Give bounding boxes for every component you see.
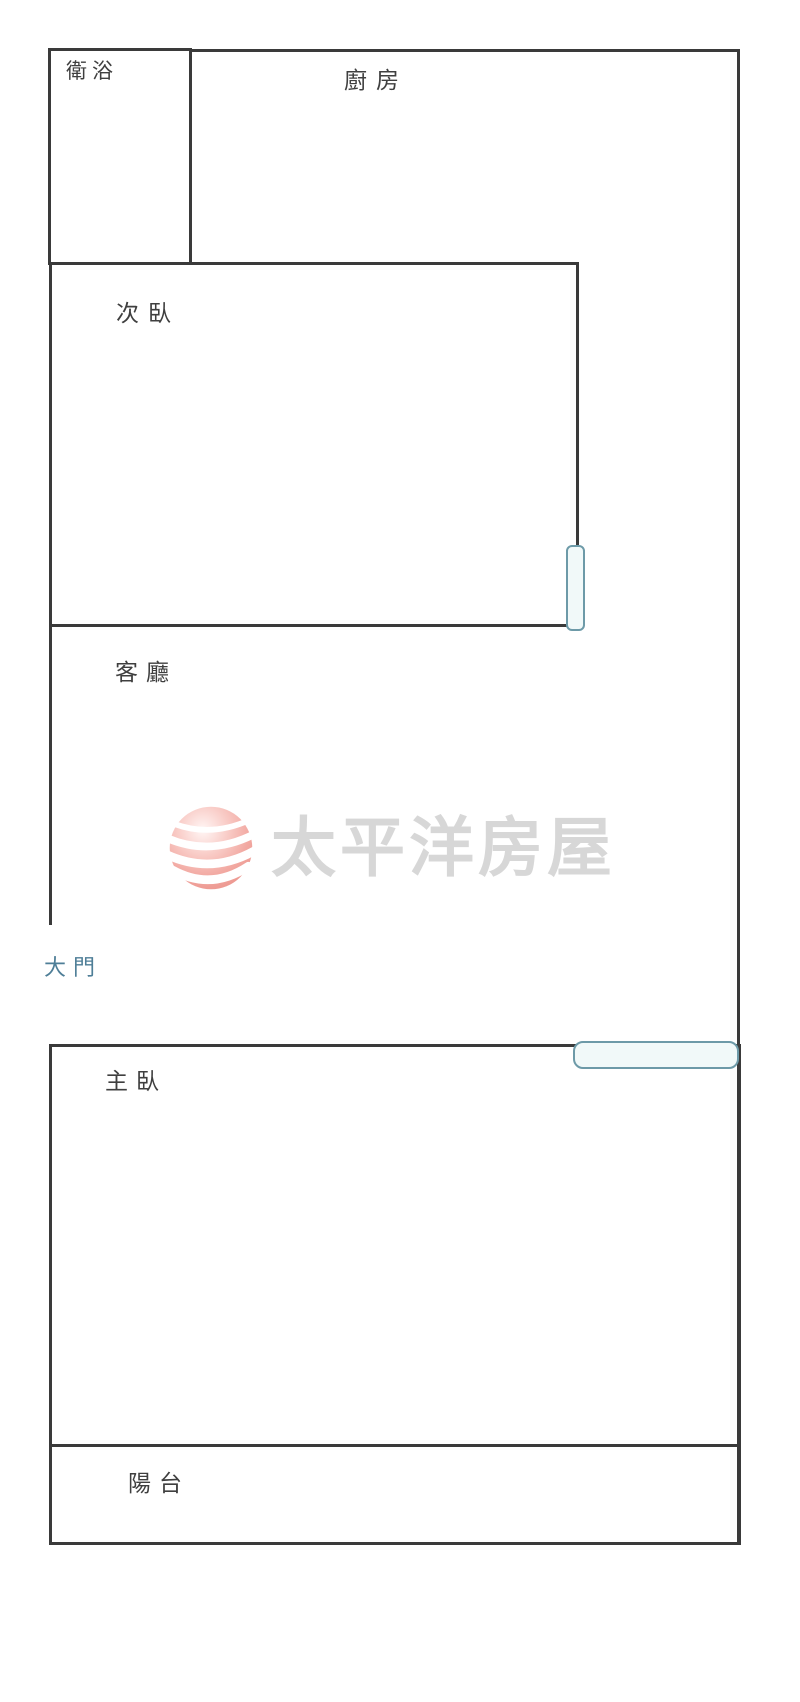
kitchen-label: 廚房: [344, 69, 408, 94]
brand-text: 太平洋房屋: [271, 816, 616, 881]
balcony-label: 陽台: [128, 1472, 190, 1497]
outer-wall-top: [192, 49, 739, 52]
balcony-divider-wall: [49, 1444, 741, 1447]
entrance-door-label: 大門: [44, 957, 102, 981]
floor-plan: 衛浴 廚房 次臥 客廳 大門 主臥 陽台 太平洋房屋: [0, 0, 800, 1702]
living-room-label: 客廳: [115, 661, 177, 686]
master-bedroom-window-icon: [573, 1041, 739, 1069]
bathroom-label: 衛浴: [66, 60, 118, 83]
secondary-bedroom-label: 次臥: [116, 302, 180, 327]
secondary-bedroom-door-icon: [566, 545, 585, 631]
pacific-waves-sphere-icon: [163, 804, 259, 892]
watermark: 太平洋房屋: [163, 804, 616, 892]
master-bedroom-label: 主臥: [105, 1070, 167, 1095]
master-bedroom-room: [49, 1044, 741, 1545]
